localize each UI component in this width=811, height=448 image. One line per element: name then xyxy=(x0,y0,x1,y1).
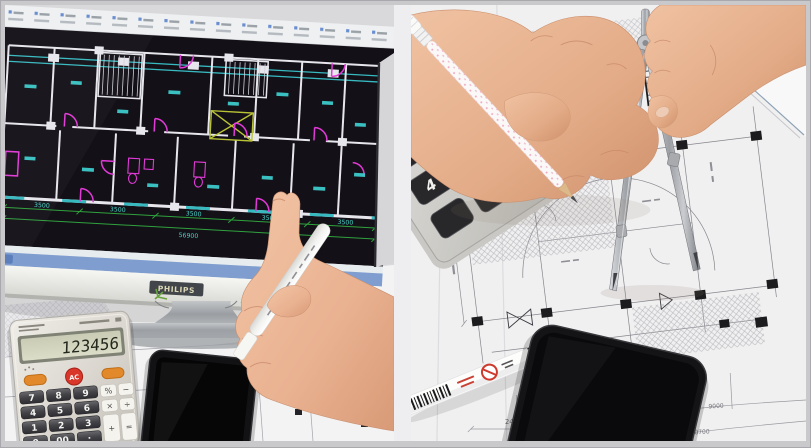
calc-key-1: 1 xyxy=(31,423,38,434)
dim-9000: 9000 xyxy=(708,402,724,410)
calc-key-6: 6 xyxy=(83,404,90,415)
calc-key-9: 9 xyxy=(82,389,89,400)
calc-key-function-right xyxy=(102,367,125,379)
left-photo: 3500 3500 3500 3500 3500 56900 PHILIPS 1… xyxy=(5,5,394,441)
cad-dim-total: 56900 xyxy=(178,232,198,240)
cad-dim-3500-3: 3500 xyxy=(186,210,202,218)
calc-key-0: 0 xyxy=(32,438,39,441)
calculator: 123456 AC 7 8 9 4 5 6 1 2 3 0 00 · xyxy=(6,310,143,441)
calc-key-8: 8 xyxy=(55,391,62,402)
calc-key-ac-label: AC xyxy=(69,373,80,382)
right-photo: 2400 9000 30700 0 0 1 4 xyxy=(411,5,806,441)
calc-key-equals: = xyxy=(125,422,132,432)
calc-key-7: 7 xyxy=(28,394,35,405)
calc-key-percent: % xyxy=(104,386,113,396)
photo-divider xyxy=(394,5,411,441)
calc-key-multiply: × xyxy=(106,401,113,411)
calc-key-divide: ÷ xyxy=(123,400,130,410)
start-button xyxy=(5,254,13,264)
calc-key-2: 2 xyxy=(58,421,65,432)
calc-key-4: 4 xyxy=(30,408,37,419)
calc-key-minus: − xyxy=(122,385,129,395)
calc-key-function-left xyxy=(24,374,47,386)
calc-key-5: 5 xyxy=(57,406,64,417)
calc-key-3: 3 xyxy=(85,419,92,430)
cad-dim-3500-2: 3500 xyxy=(110,206,126,214)
photo-collage: 3500 3500 3500 3500 3500 56900 PHILIPS 1… xyxy=(0,0,811,448)
calc-key-plus: + xyxy=(108,424,115,434)
calc-key-00: 00 xyxy=(56,436,69,441)
cad-dim-3500-5: 3500 xyxy=(337,219,353,227)
